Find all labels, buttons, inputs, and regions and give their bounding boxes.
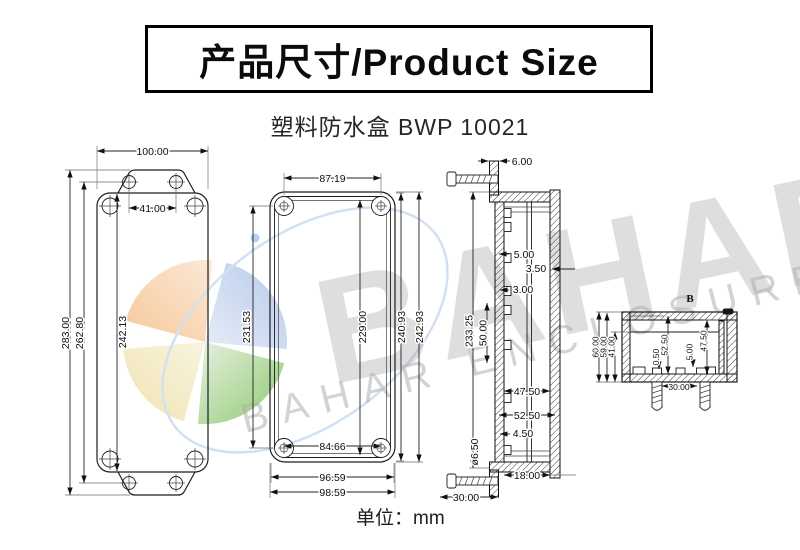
b-screw-left: [652, 382, 662, 410]
dim-text: 98.59: [319, 487, 345, 499]
left-wall: [495, 202, 504, 462]
dim-text: 47.50: [514, 386, 540, 398]
page-title: 产品尺寸/Product Size: [199, 32, 598, 86]
b-floor-bosses: [633, 367, 716, 374]
dim-text: 229.00: [357, 311, 369, 343]
dim-box-bottom-inner-width: 84.66: [284, 441, 381, 453]
b-left-wall: [622, 312, 630, 382]
dim-text: 47.50: [699, 330, 709, 352]
dim-text: 87.19: [319, 173, 345, 185]
dim-text: 30.00: [453, 492, 479, 504]
dim-text: 96.59: [319, 472, 345, 484]
dim-b-screw-spacing: 30.00: [662, 382, 697, 392]
b-screw-right: [700, 382, 710, 410]
dim-text: 262.80: [74, 317, 86, 349]
dim-text: 3.00: [513, 284, 534, 296]
lid-wall: [550, 190, 560, 478]
dim-text: 41.00: [607, 336, 617, 358]
unit-label: 单位：mm: [356, 503, 445, 530]
dim-text: 6.00: [512, 156, 533, 168]
dim-text: ø6.50: [469, 438, 481, 465]
dim-text: 100.00: [136, 146, 168, 158]
dim-text: 52.50: [660, 334, 670, 356]
dim-text: 242.13: [117, 316, 129, 348]
dim-text: 50.00: [478, 320, 490, 346]
product-subtitle: 塑料防水盒 BWP 10021: [100, 108, 700, 142]
top-cap: [490, 192, 551, 202]
dim-text: 84.66: [319, 441, 345, 453]
dim-text: 5.00: [514, 249, 535, 261]
dim-text: 30.00: [668, 382, 690, 392]
dim-b-boss-height: 5.00: [685, 343, 695, 367]
dim-text: 5.00: [685, 343, 695, 360]
dim-text: 242.93: [414, 311, 426, 343]
dim-front-hole-spacing: 41.00: [129, 190, 176, 215]
b-lid-strip: [719, 321, 724, 374]
dim-text: 231.53: [241, 311, 253, 343]
b-bottom-wall: [622, 374, 737, 382]
detail-b-label: B: [686, 293, 694, 305]
dim-text: 240.93: [396, 311, 408, 343]
front-bottom-ear: [118, 472, 195, 495]
dim-text: 3.50: [526, 263, 547, 275]
title-banner: 产品尺寸/Product Size: [145, 25, 653, 93]
b-right-wall: [727, 312, 737, 382]
front-top-ear: [118, 170, 195, 193]
dim-rib: 4.50: [500, 428, 533, 440]
dim-base-depth: 18.00: [504, 470, 576, 482]
dim-front-body-height: 242.13: [117, 194, 129, 471]
dim-text: 52.50: [514, 410, 540, 422]
dim-text: 4.50: [513, 428, 534, 440]
dim-text: 41.00: [139, 203, 165, 215]
dim-text: 18.00: [514, 470, 540, 482]
logo-petal-yellow: [123, 342, 205, 421]
dim-mid-width: 52.50: [499, 410, 555, 422]
dim-flange-thickness: 6.00: [478, 156, 532, 168]
dim-text: 283.00: [60, 317, 72, 349]
dim-text: 233.25: [464, 315, 476, 347]
dim-flange-hole-dia: ø6.50: [469, 438, 481, 465]
dim-front-overall-width: 100.00: [97, 146, 208, 189]
logo-orbit-dot: [251, 234, 260, 243]
dim-front-hole-span: 262.80: [74, 182, 122, 483]
dim-box-body-width: 96.59: [271, 463, 394, 484]
